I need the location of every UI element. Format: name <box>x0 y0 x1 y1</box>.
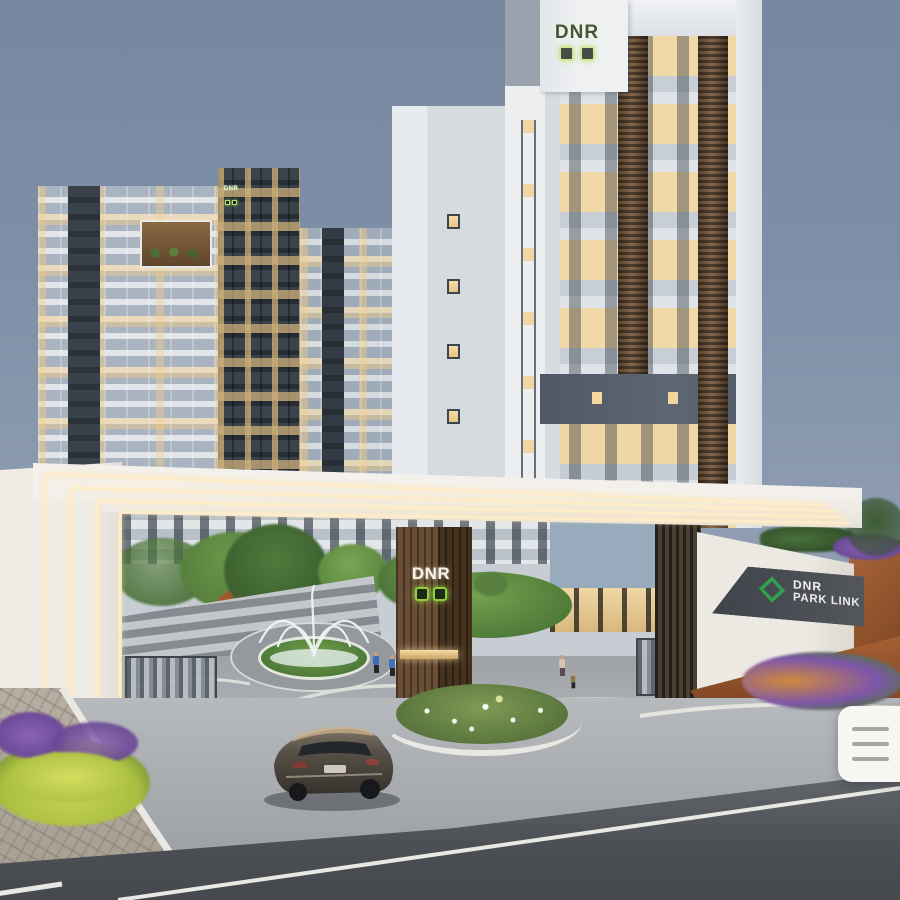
louver-screen <box>698 0 728 528</box>
tower-top-logo-text: DNR <box>548 22 606 44</box>
security-guard <box>372 652 380 673</box>
tower-dark-band <box>540 374 762 424</box>
window <box>447 409 460 424</box>
tower-top-logo: DNR <box>548 22 606 86</box>
scene: DNR DNR <box>0 0 900 900</box>
road-markings <box>0 770 900 900</box>
back-tower-logo: DNR <box>219 186 243 208</box>
logo-square-icon <box>415 587 429 601</box>
shrub <box>474 572 508 596</box>
main-tower <box>505 0 762 528</box>
flower-bed-right <box>742 652 900 710</box>
back-tower-logo-text: DNR <box>219 186 243 193</box>
logo-square-icon <box>580 46 595 61</box>
wood-balcony-feature <box>140 220 212 268</box>
logo-square-icon <box>232 200 237 205</box>
logo-square-icon <box>433 587 447 601</box>
balcony-plants <box>146 248 208 258</box>
gate-pillar-logo: DNR <box>404 564 458 638</box>
pillar-light-strip <box>400 650 458 659</box>
window <box>447 214 460 229</box>
dnr-diamond-logo-icon <box>758 574 786 604</box>
window <box>447 279 460 294</box>
tower-corner-column <box>736 0 762 528</box>
window <box>447 344 460 359</box>
logo-square-icon <box>559 46 574 61</box>
security-guard <box>388 655 396 676</box>
mid-tower <box>392 106 518 526</box>
child <box>570 673 576 688</box>
suv-car <box>252 702 412 814</box>
woman <box>558 655 566 676</box>
gate-right-jamb <box>655 522 701 704</box>
menu-button[interactable] <box>838 706 900 782</box>
background-tower-center-dark <box>218 168 300 520</box>
gate-pillar-logo-text: DNR <box>404 564 458 584</box>
tower-slab-windows <box>521 120 536 520</box>
logo-square-icon <box>225 200 230 205</box>
